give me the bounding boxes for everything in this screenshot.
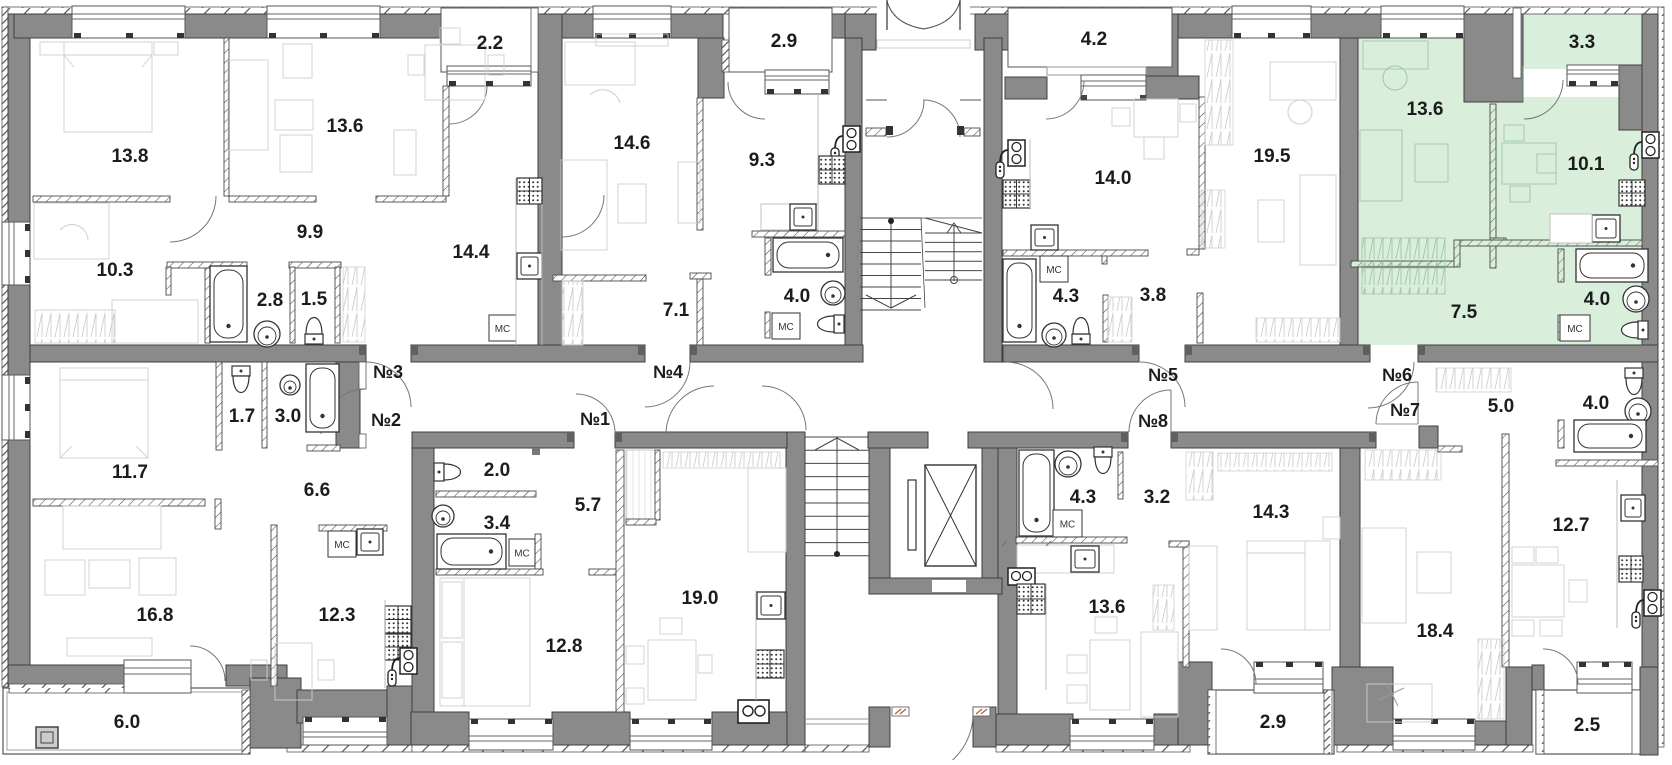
svg-text:2.0: 2.0 xyxy=(484,460,510,481)
svg-text:6.6: 6.6 xyxy=(304,480,330,501)
svg-text:12.8: 12.8 xyxy=(546,636,583,657)
svg-text:13.6: 13.6 xyxy=(1407,99,1444,120)
svg-text:13.8: 13.8 xyxy=(112,146,149,167)
svg-text:МС: МС xyxy=(1567,324,1583,335)
svg-text:14.3: 14.3 xyxy=(1253,502,1290,523)
svg-text:11.7: 11.7 xyxy=(112,462,148,483)
svg-text:7.5: 7.5 xyxy=(1451,302,1478,323)
svg-text:МС: МС xyxy=(334,540,350,551)
svg-text:12.3: 12.3 xyxy=(319,605,356,626)
svg-text:№6: №6 xyxy=(1382,365,1412,385)
svg-text:4.0: 4.0 xyxy=(1583,393,1609,414)
svg-text:7.1: 7.1 xyxy=(663,300,690,321)
svg-text:2.9: 2.9 xyxy=(771,31,797,52)
svg-text:МС: МС xyxy=(1060,520,1076,531)
svg-text:13.6: 13.6 xyxy=(327,116,364,137)
svg-text:5.7: 5.7 xyxy=(575,495,601,516)
svg-text:19.0: 19.0 xyxy=(682,588,719,609)
svg-text:3.3: 3.3 xyxy=(1569,32,1595,53)
svg-text:МС: МС xyxy=(778,322,794,333)
svg-text:4.2: 4.2 xyxy=(1081,29,1107,50)
svg-text:12.7: 12.7 xyxy=(1553,515,1590,536)
svg-text:14.0: 14.0 xyxy=(1095,168,1132,189)
svg-text:19.5: 19.5 xyxy=(1254,146,1291,167)
svg-text:4.3: 4.3 xyxy=(1070,487,1096,508)
svg-text:1.7: 1.7 xyxy=(229,406,255,427)
svg-text:16.8: 16.8 xyxy=(137,605,174,626)
svg-text:МС: МС xyxy=(514,549,530,560)
svg-text:4.3: 4.3 xyxy=(1053,286,1079,307)
svg-text:№4: №4 xyxy=(653,362,683,382)
svg-text:№2: №2 xyxy=(371,410,401,430)
svg-text:10.3: 10.3 xyxy=(97,260,134,281)
svg-text:14.4: 14.4 xyxy=(453,242,490,263)
svg-text:3.0: 3.0 xyxy=(275,406,301,427)
svg-text:2.2: 2.2 xyxy=(477,33,503,54)
svg-text:№1: №1 xyxy=(580,409,610,429)
svg-text:3.8: 3.8 xyxy=(1140,285,1166,306)
svg-text:9.9: 9.9 xyxy=(297,222,323,243)
svg-text:13.6: 13.6 xyxy=(1089,597,1126,618)
svg-text:5.0: 5.0 xyxy=(1488,396,1514,417)
svg-text:4.0: 4.0 xyxy=(784,286,810,307)
svg-text:3.4: 3.4 xyxy=(484,513,511,534)
svg-text:3.2: 3.2 xyxy=(1144,487,1170,508)
svg-text:МС: МС xyxy=(495,324,511,335)
svg-text:2.8: 2.8 xyxy=(257,290,283,311)
svg-text:2.9: 2.9 xyxy=(1260,712,1286,733)
svg-text:9.3: 9.3 xyxy=(749,150,775,171)
svg-text:1.5: 1.5 xyxy=(301,289,328,310)
svg-text:10.1: 10.1 xyxy=(1568,154,1605,175)
svg-text:№3: №3 xyxy=(373,362,403,382)
svg-text:14.6: 14.6 xyxy=(614,133,651,154)
svg-text:№5: №5 xyxy=(1148,365,1178,385)
svg-text:№7: №7 xyxy=(1390,400,1420,420)
svg-text:№8: №8 xyxy=(1138,411,1168,431)
svg-text:18.4: 18.4 xyxy=(1417,621,1454,642)
svg-text:6.0: 6.0 xyxy=(114,712,140,733)
svg-text:4.0: 4.0 xyxy=(1584,289,1610,310)
svg-text:2.5: 2.5 xyxy=(1574,715,1601,736)
svg-text:МС: МС xyxy=(1046,265,1062,276)
